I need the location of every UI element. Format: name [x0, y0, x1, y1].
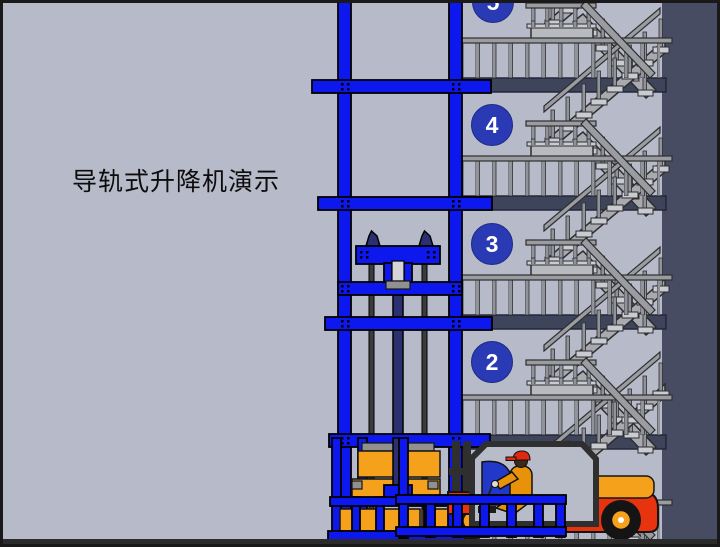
lift-demo-scene: 导轨式升降机演示 5 4 3 2: [0, 0, 720, 547]
tower-beam: [312, 80, 491, 93]
floor-4-label: 4: [486, 112, 499, 138]
floor-3-label: 3: [486, 231, 499, 257]
right-wall: [662, 0, 720, 547]
rear-wheel: [601, 500, 641, 540]
pulley-bracket-left: [384, 263, 392, 282]
lift-demo-animation-stage: 导轨式升降机演示 5 4 3 2: [0, 0, 720, 547]
pulley-bracket-right: [404, 263, 412, 282]
tower-beam: [325, 317, 492, 330]
floor-badge-2: 2: [472, 342, 513, 383]
floor-badge-4: 4: [472, 105, 513, 146]
tower-beam: [318, 197, 492, 210]
floor-badge-3: 3: [472, 224, 513, 265]
demo-title: 导轨式升降机演示: [72, 168, 280, 196]
floor-2-label: 2: [486, 349, 499, 375]
pulley: [392, 261, 404, 281]
